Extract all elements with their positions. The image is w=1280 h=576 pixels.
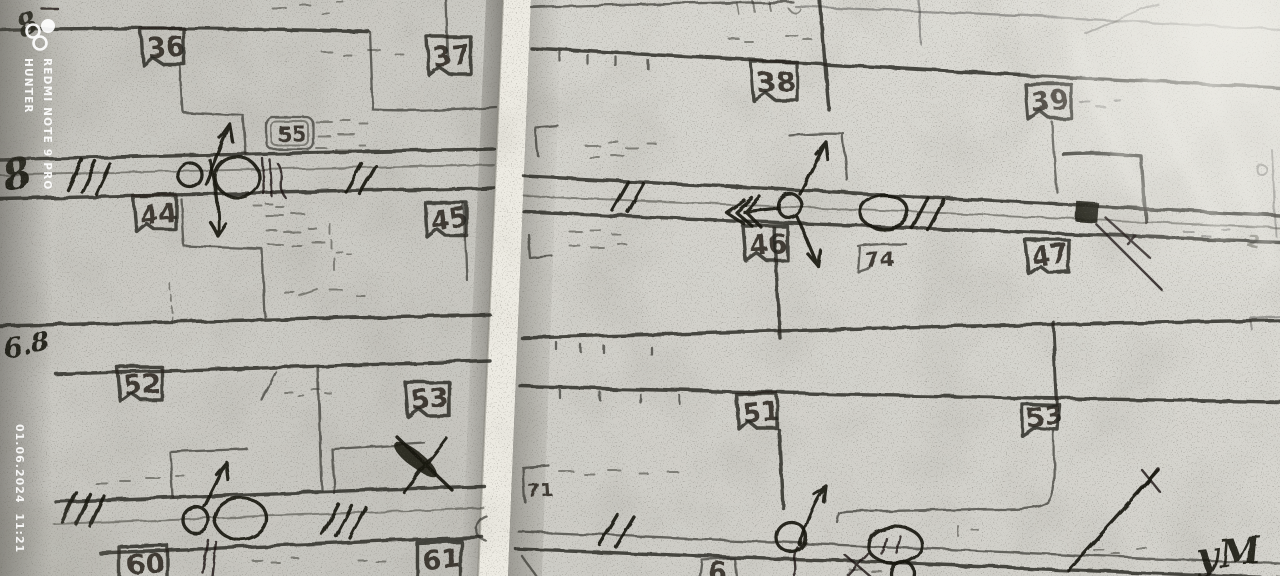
photocopy-fade-top-right <box>1020 0 1280 300</box>
watermark-device-text: REDMI NOTE 9 PRO <box>41 58 53 191</box>
watermark-brand-text: HUNTER <box>22 58 34 114</box>
photo-of-notebook-diagram: 36 37 55 44 45 <box>0 0 1280 576</box>
watermark-timestamp-text: 01.06.2024 11:21 <box>13 424 26 553</box>
